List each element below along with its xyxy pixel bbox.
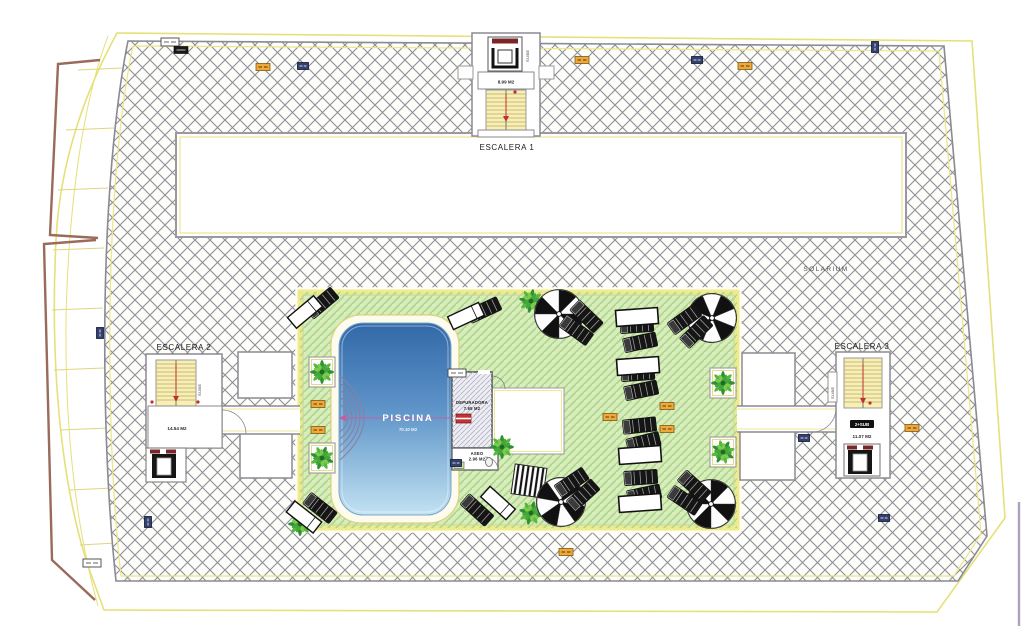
tag-navy-icon [298,63,309,70]
escalera-1-area: 8.99 M2 [498,80,515,85]
pool-area-label: 70.10 M2 [399,427,418,432]
tag-navy-icon [145,517,152,528]
tag-black-icon [174,47,188,54]
stair-flight-3-icon [844,358,882,408]
corridor-left [222,406,300,434]
elevator-1-icon [488,37,522,71]
escalera-2-direction: SUBE [197,384,202,397]
tag-orange-icon [311,401,325,408]
tag-orange-icon [559,549,573,556]
escalera-3-direction: SUBE [830,387,835,400]
escalera-3-badge-label: 2+SUB [855,422,869,427]
roof-void: ESCALERA 1 [176,133,906,237]
escalera-2-area: 14.54 M2 [167,426,187,431]
floor-plan-page: SOLARIUM ESCALERA 1 SUBE 8.99 M2 [0,0,1024,626]
pump-icon [456,414,471,423]
escalera-3: ESCALERA 3 SUBE 2+SUB 11.07 M2 [828,342,890,478]
tag-orange-icon [738,63,752,70]
pool-label: PISCINA [382,413,433,424]
stair-flight-2-icon [150,360,199,406]
solarium-label: SOLARIUM [803,266,848,273]
aseo-label: ASEO [471,451,484,456]
tag-white-icon [448,369,466,377]
table-white-icon [618,494,661,513]
solarium-floor-plan: SOLARIUM ESCALERA 1 SUBE 8.99 M2 [0,0,1024,626]
depuradora-label: DEPURADORA [456,400,488,405]
escalera-2-label: ESCALERA 2 [157,343,212,352]
tag-navy-icon [451,460,462,467]
tag-navy-icon [97,328,104,339]
palm-icon [711,371,735,395]
elevator-2-icon [146,448,186,482]
tag-white-icon [83,559,101,567]
escalera-1-direction: SUBE [525,50,530,63]
table-white-icon [615,308,658,327]
tag-orange-icon [905,425,919,432]
pool: PISCINA 70.10 M2 [331,315,459,523]
tag-navy-icon [799,435,810,442]
tag-navy-icon [879,515,890,522]
tag-orange-icon [311,427,325,434]
palm-icon [310,360,334,384]
elevator-3-icon [844,444,880,476]
escalera-1-label: ESCALERA 1 [480,143,535,152]
escalera-3-area: 11.07 M2 [853,434,872,439]
table-white-icon [616,357,659,376]
tag-orange-icon [660,426,674,433]
palm-icon [490,435,514,459]
stair-flight-1-icon [486,90,526,130]
corridor-right [737,406,838,432]
escalera-1: SUBE 8.99 M2 [458,33,554,137]
depuradora-area-label: 7.65 M2 [464,406,481,411]
tag-orange-icon [660,403,674,410]
escalera-3-label: ESCALERA 3 [835,342,890,351]
tag-white-icon [161,38,179,46]
tag-orange-icon [256,64,270,71]
tag-navy-icon [692,57,703,64]
tag-navy-icon [872,42,879,53]
tag-orange-icon [603,414,617,421]
tag-orange-icon [575,57,589,64]
aseo-area-label: 2.96 M2 [469,457,486,462]
table-white-icon [618,446,661,465]
